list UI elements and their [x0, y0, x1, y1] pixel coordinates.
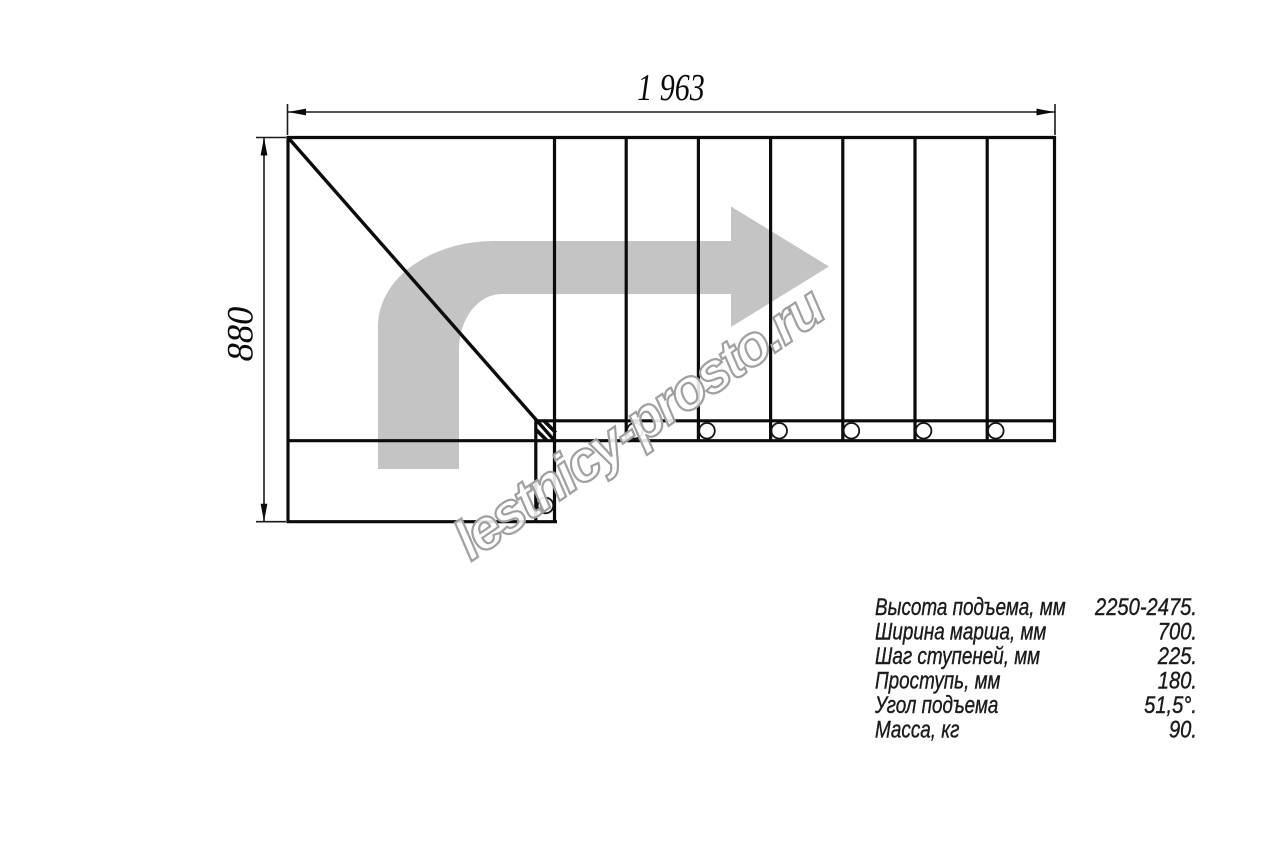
svg-text:90.: 90.	[1169, 716, 1197, 743]
svg-text:2250-2475.: 2250-2475.	[1094, 594, 1197, 621]
svg-text:51,5°.: 51,5°.	[1144, 692, 1197, 719]
svg-text:700.: 700.	[1158, 618, 1197, 645]
svg-text:1 963: 1 963	[637, 67, 705, 109]
svg-text:180.: 180.	[1158, 667, 1197, 694]
svg-text:880: 880	[220, 307, 261, 362]
svg-text:Масса, кг: Масса, кг	[875, 715, 960, 743]
svg-text:225.: 225.	[1157, 643, 1197, 670]
